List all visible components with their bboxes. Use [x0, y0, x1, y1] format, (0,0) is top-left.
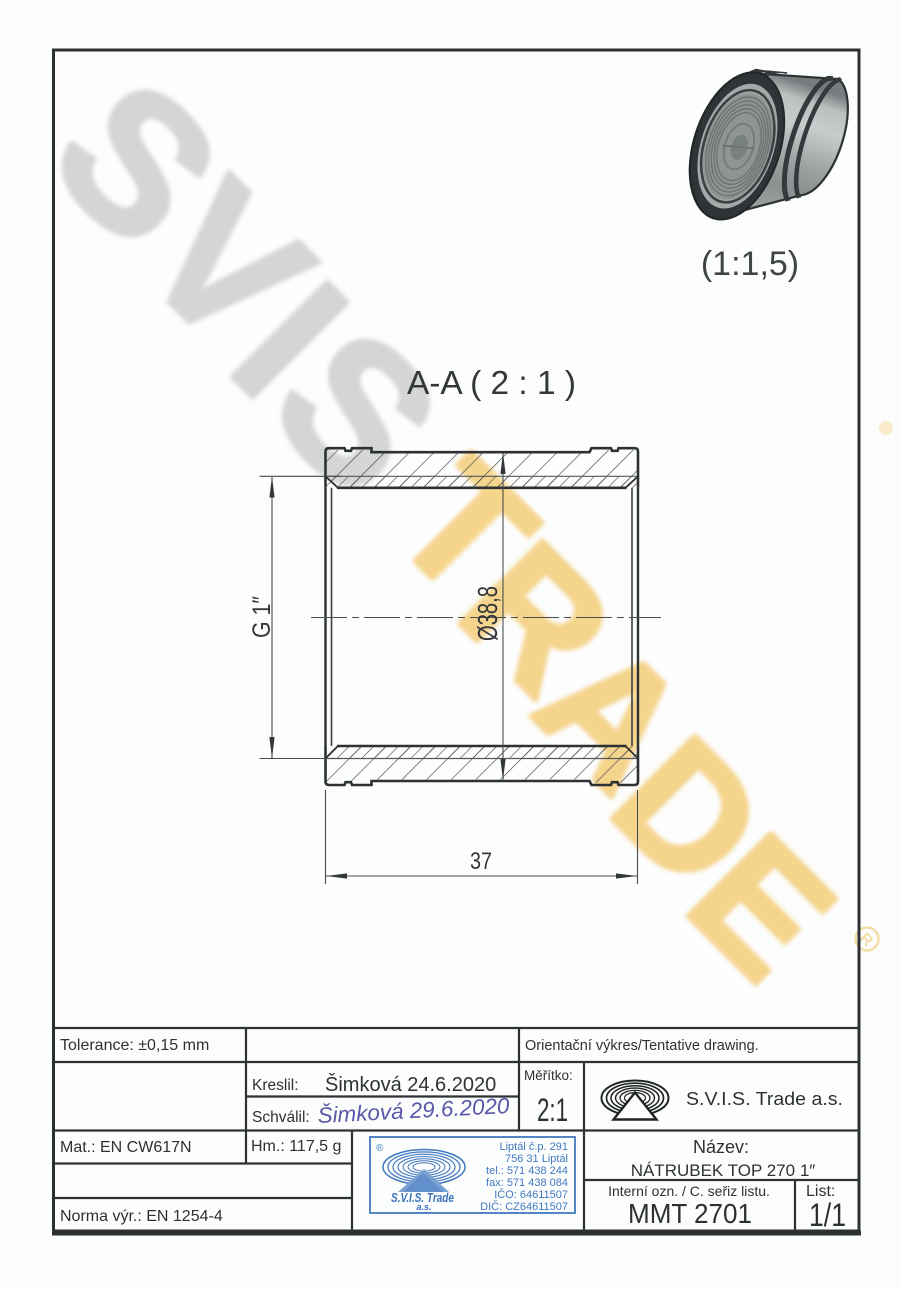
svg-text:NÁTRUBEK TOP 270 1″: NÁTRUBEK TOP 270 1″: [631, 1161, 816, 1180]
svg-text:Liptál č.p. 291: Liptál č.p. 291: [500, 1141, 569, 1153]
svg-text:Interní ozn. / C. seřiz listu.: Interní ozn. / C. seřiz listu.: [608, 1183, 770, 1199]
svg-text:2:1: 2:1: [537, 1092, 568, 1128]
svg-text:1/1: 1/1: [809, 1197, 846, 1233]
svg-text:S.V.I.S. Trade a.s.: S.V.I.S. Trade a.s.: [686, 1089, 843, 1109]
svg-text:Ø38,8: Ø38,8: [472, 586, 503, 641]
svg-text:Hm.: 117,5 g: Hm.: 117,5 g: [251, 1138, 341, 1155]
svg-text:Norma výr.: EN 1254-4: Norma výr.: EN 1254-4: [60, 1208, 223, 1225]
svg-text:Kreslil:: Kreslil:: [252, 1077, 299, 1094]
svg-text:Schválil:: Schválil:: [252, 1109, 310, 1126]
svg-text:®: ®: [376, 1143, 384, 1154]
svg-text:tel.: 571 438 244: tel.: 571 438 244: [486, 1165, 568, 1177]
svg-text:756 31 Liptál: 756 31 Liptál: [505, 1153, 568, 1165]
svg-text:Měřítko:: Měřítko:: [524, 1068, 573, 1083]
svg-text:IČO: 64611507: IČO: 64611507: [494, 1188, 568, 1201]
svg-text:fax: 571 438 084: fax: 571 438 084: [486, 1177, 568, 1189]
svg-text:A-A ( 2 : 1 ): A-A ( 2 : 1 ): [407, 364, 576, 401]
svg-text:37: 37: [470, 848, 492, 875]
svg-text:G 1″: G 1″: [248, 596, 276, 638]
svg-text:Tolerance: ±0,15 mm: Tolerance: ±0,15 mm: [60, 1037, 209, 1054]
svg-text:DIČ: CZ64611507: DIČ: CZ64611507: [480, 1200, 568, 1213]
svg-text:Orientační výkres/Tentative dr: Orientační výkres/Tentative drawing.: [525, 1038, 759, 1054]
svg-text:a.s.: a.s.: [416, 1202, 431, 1212]
svg-text:Název:: Název:: [693, 1137, 749, 1157]
svg-text:Mat.: EN CW617N: Mat.: EN CW617N: [60, 1139, 192, 1156]
svg-text:Šimková 24.6.2020: Šimková 24.6.2020: [325, 1073, 496, 1096]
svg-text:MMT 2701: MMT 2701: [628, 1198, 752, 1229]
svg-text:(1:1,5): (1:1,5): [701, 245, 799, 283]
